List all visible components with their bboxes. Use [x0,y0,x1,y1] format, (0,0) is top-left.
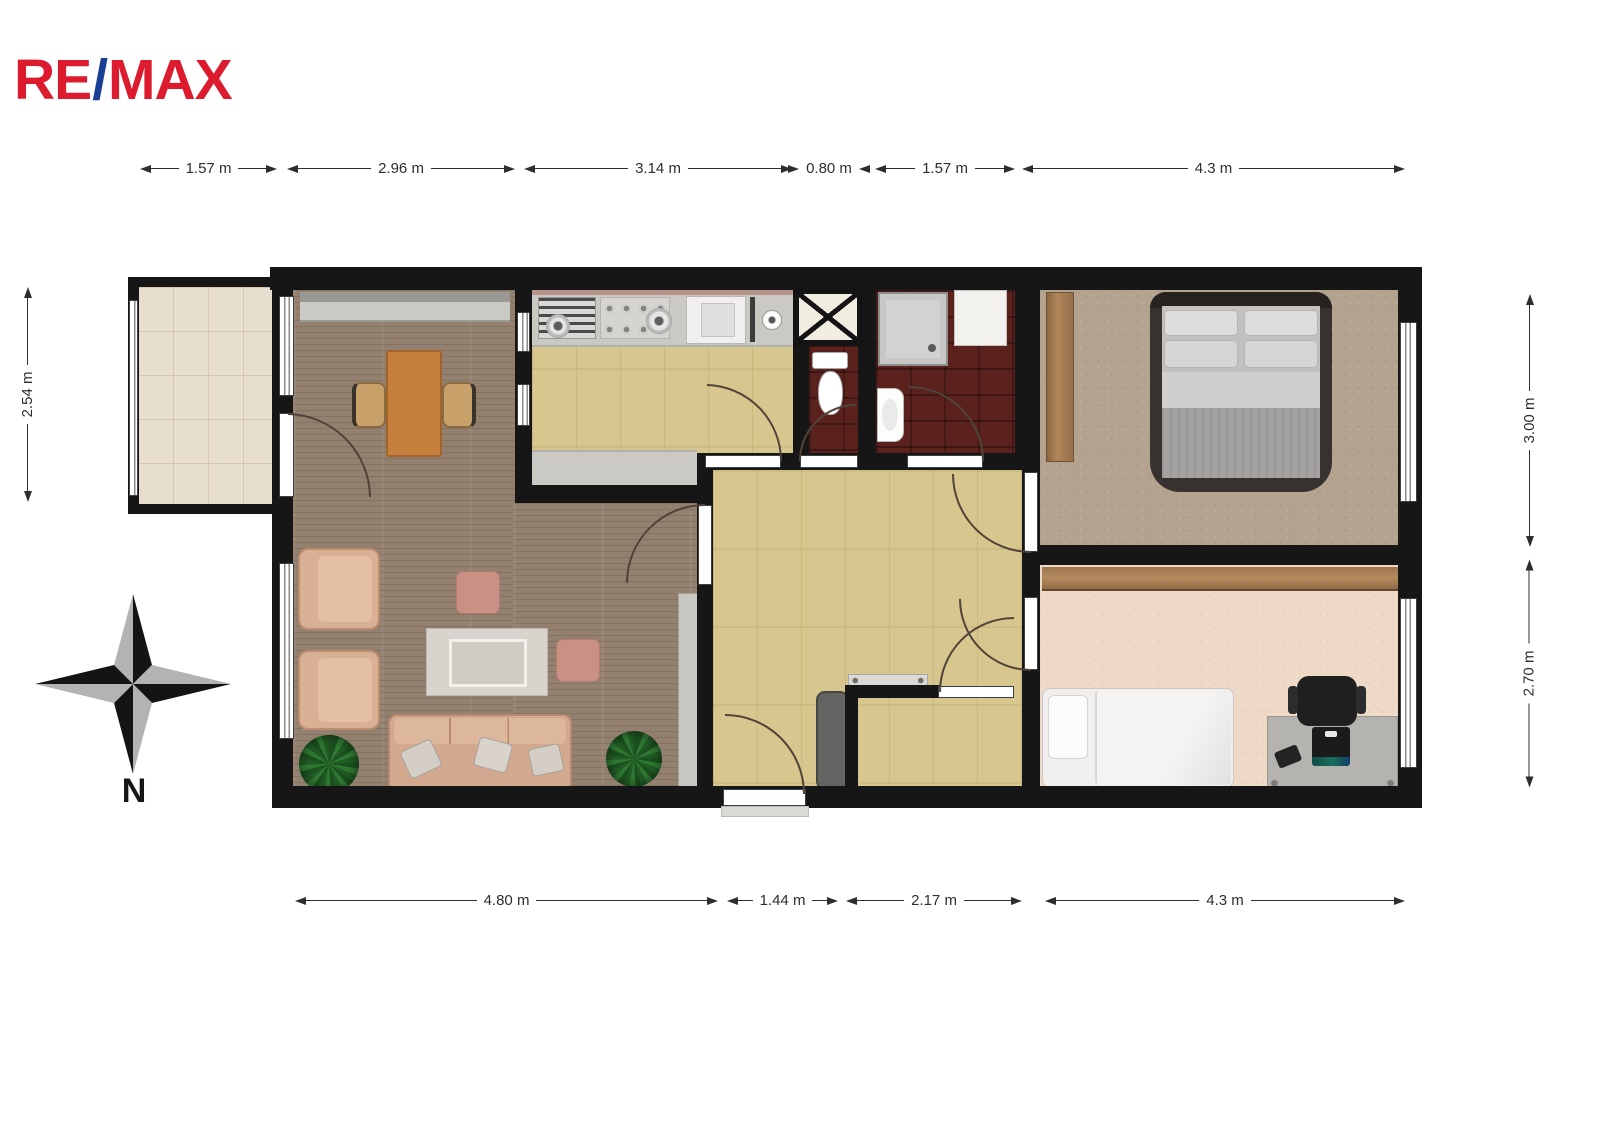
bedroom-window [1400,322,1417,502]
dimension-bottom-2: 1.44 m [727,892,838,909]
shower-drain [928,344,936,352]
dimension-label: 2.54 m [19,365,36,425]
washing-machine [954,290,1007,346]
dimension-label: 2.96 m [371,160,431,177]
dimension-label: 1.44 m [753,892,813,909]
oven [686,296,746,344]
dining-chair-right [442,382,476,428]
balcony-window [279,296,294,396]
hallway-floor [713,470,1022,786]
wc-door [800,455,858,468]
dimension-right-2: 2.70 m [1521,560,1538,788]
armchair-seat [318,658,372,722]
wall-closet-left [845,685,858,788]
kitchen-door [705,455,781,468]
dining-chair-left [352,382,386,428]
dimension-label: 3.14 m [628,160,688,177]
sofa-pillow [527,743,564,777]
plant [299,735,359,793]
dimension-label: 2.17 m [904,892,964,909]
bathroom-door [907,455,983,468]
second-bedroom-door [1024,597,1038,670]
wardrobe [1046,292,1074,462]
wall-kitchen-south [515,485,713,503]
dimension-label: 4.3 m [1188,160,1240,177]
dimension-left-1: 2.54 m [19,287,36,502]
office-chair [1297,676,1357,726]
armchair-seat [318,556,372,622]
double-bed [1150,292,1332,492]
dimension-label: 0.80 m [799,160,859,177]
counter-divider [750,297,755,342]
wall-living-hall [697,453,713,788]
dining-table [386,350,442,457]
shower [878,292,948,366]
bed-pillow [1244,310,1318,336]
bed-pillow [1164,310,1238,336]
burner [546,314,570,338]
dimension-label: 4.3 m [1199,892,1251,909]
sink-basin [882,399,898,431]
dimension-bottom-1: 4.80 m [295,892,718,909]
balcony-glazing [129,300,138,496]
toilet-tank [812,352,848,369]
ventilation-shaft [793,288,863,346]
dimension-right-1: 3.00 m [1521,294,1538,547]
single-bed [1042,688,1234,788]
living-room-door [698,505,712,585]
bed-blanket [1095,691,1231,785]
balcony-door [279,413,294,497]
coffee-table [449,639,527,687]
office-chair-armrest [1356,686,1366,714]
dining-sideboard [300,292,510,322]
dimension-bottom-4: 4.3 m [1045,892,1405,909]
bedroom-door [1024,472,1038,552]
sink-faucet [762,310,782,330]
entrance-door [723,789,806,806]
coffee-table-rug [426,628,548,696]
compass-north-label: N [108,772,160,811]
office-chair-armrest [1288,686,1298,714]
kitchen-pass-window [517,312,530,352]
armchair [298,548,380,630]
wall-bottom [272,786,1422,808]
dimension-label: 1.57 m [915,160,975,177]
laptop [1312,727,1350,759]
dimension-bottom-3: 2.17 m [846,892,1022,909]
dimension-top-1: 1.57 m [140,160,277,177]
bathroom-sink [877,388,904,442]
bed-pillow [1164,340,1238,368]
bed-pillow [1244,340,1318,368]
wall-bathroom-bedroom [1015,288,1040,470]
logo-re: RE [14,48,91,112]
armchair [298,650,380,730]
dimension-label: 3.00 m [1521,391,1538,451]
burner [646,308,672,334]
balcony-floor [138,287,277,504]
balcony-wall-top [128,277,290,287]
dimension-top-6: 4.3 m [1022,160,1405,177]
laptop-camera [1325,731,1337,737]
wall-bedrooms-divider [1022,545,1398,565]
second-bedroom-window [1400,598,1417,768]
bed-pillow [1048,695,1088,759]
wall-closet-top [845,685,940,698]
sofa-pillow [399,738,442,780]
dimension-top-5: 1.57 m [875,160,1015,177]
closet-door [938,686,1014,698]
laptop-keyboard [1312,757,1350,766]
dimension-label: 2.70 m [1521,644,1538,704]
floor-plan-page: RE/MAX [0,0,1599,1130]
living-room-window [279,563,294,739]
dimension-top-3: 3.14 m [524,160,792,177]
pouf [556,639,600,682]
plant [606,731,662,787]
kitchen-lower-counter [532,450,697,485]
wall-top [270,267,1422,290]
oven-door [701,303,735,337]
entrance-threshold [721,806,809,817]
dimension-top-2: 2.96 m [287,160,515,177]
bed-blanket [1162,408,1320,478]
sofa [388,714,572,792]
logo-max: MAX [108,48,232,112]
dimension-top-4: 0.80 m [788,160,870,177]
balcony-wall-bottom [128,504,290,514]
remax-logo: RE/MAX [14,52,232,109]
dimension-label: 1.57 m [179,160,239,177]
wardrobe [1042,567,1398,591]
dimension-label: 4.80 m [477,892,537,909]
bed-sheet [1162,372,1320,408]
toilet-bowl [818,371,843,415]
kitchen-pass-window [517,384,530,426]
compass-rose-icon [35,594,231,774]
logo-slash-icon: / [91,48,108,112]
pouf [456,571,500,614]
